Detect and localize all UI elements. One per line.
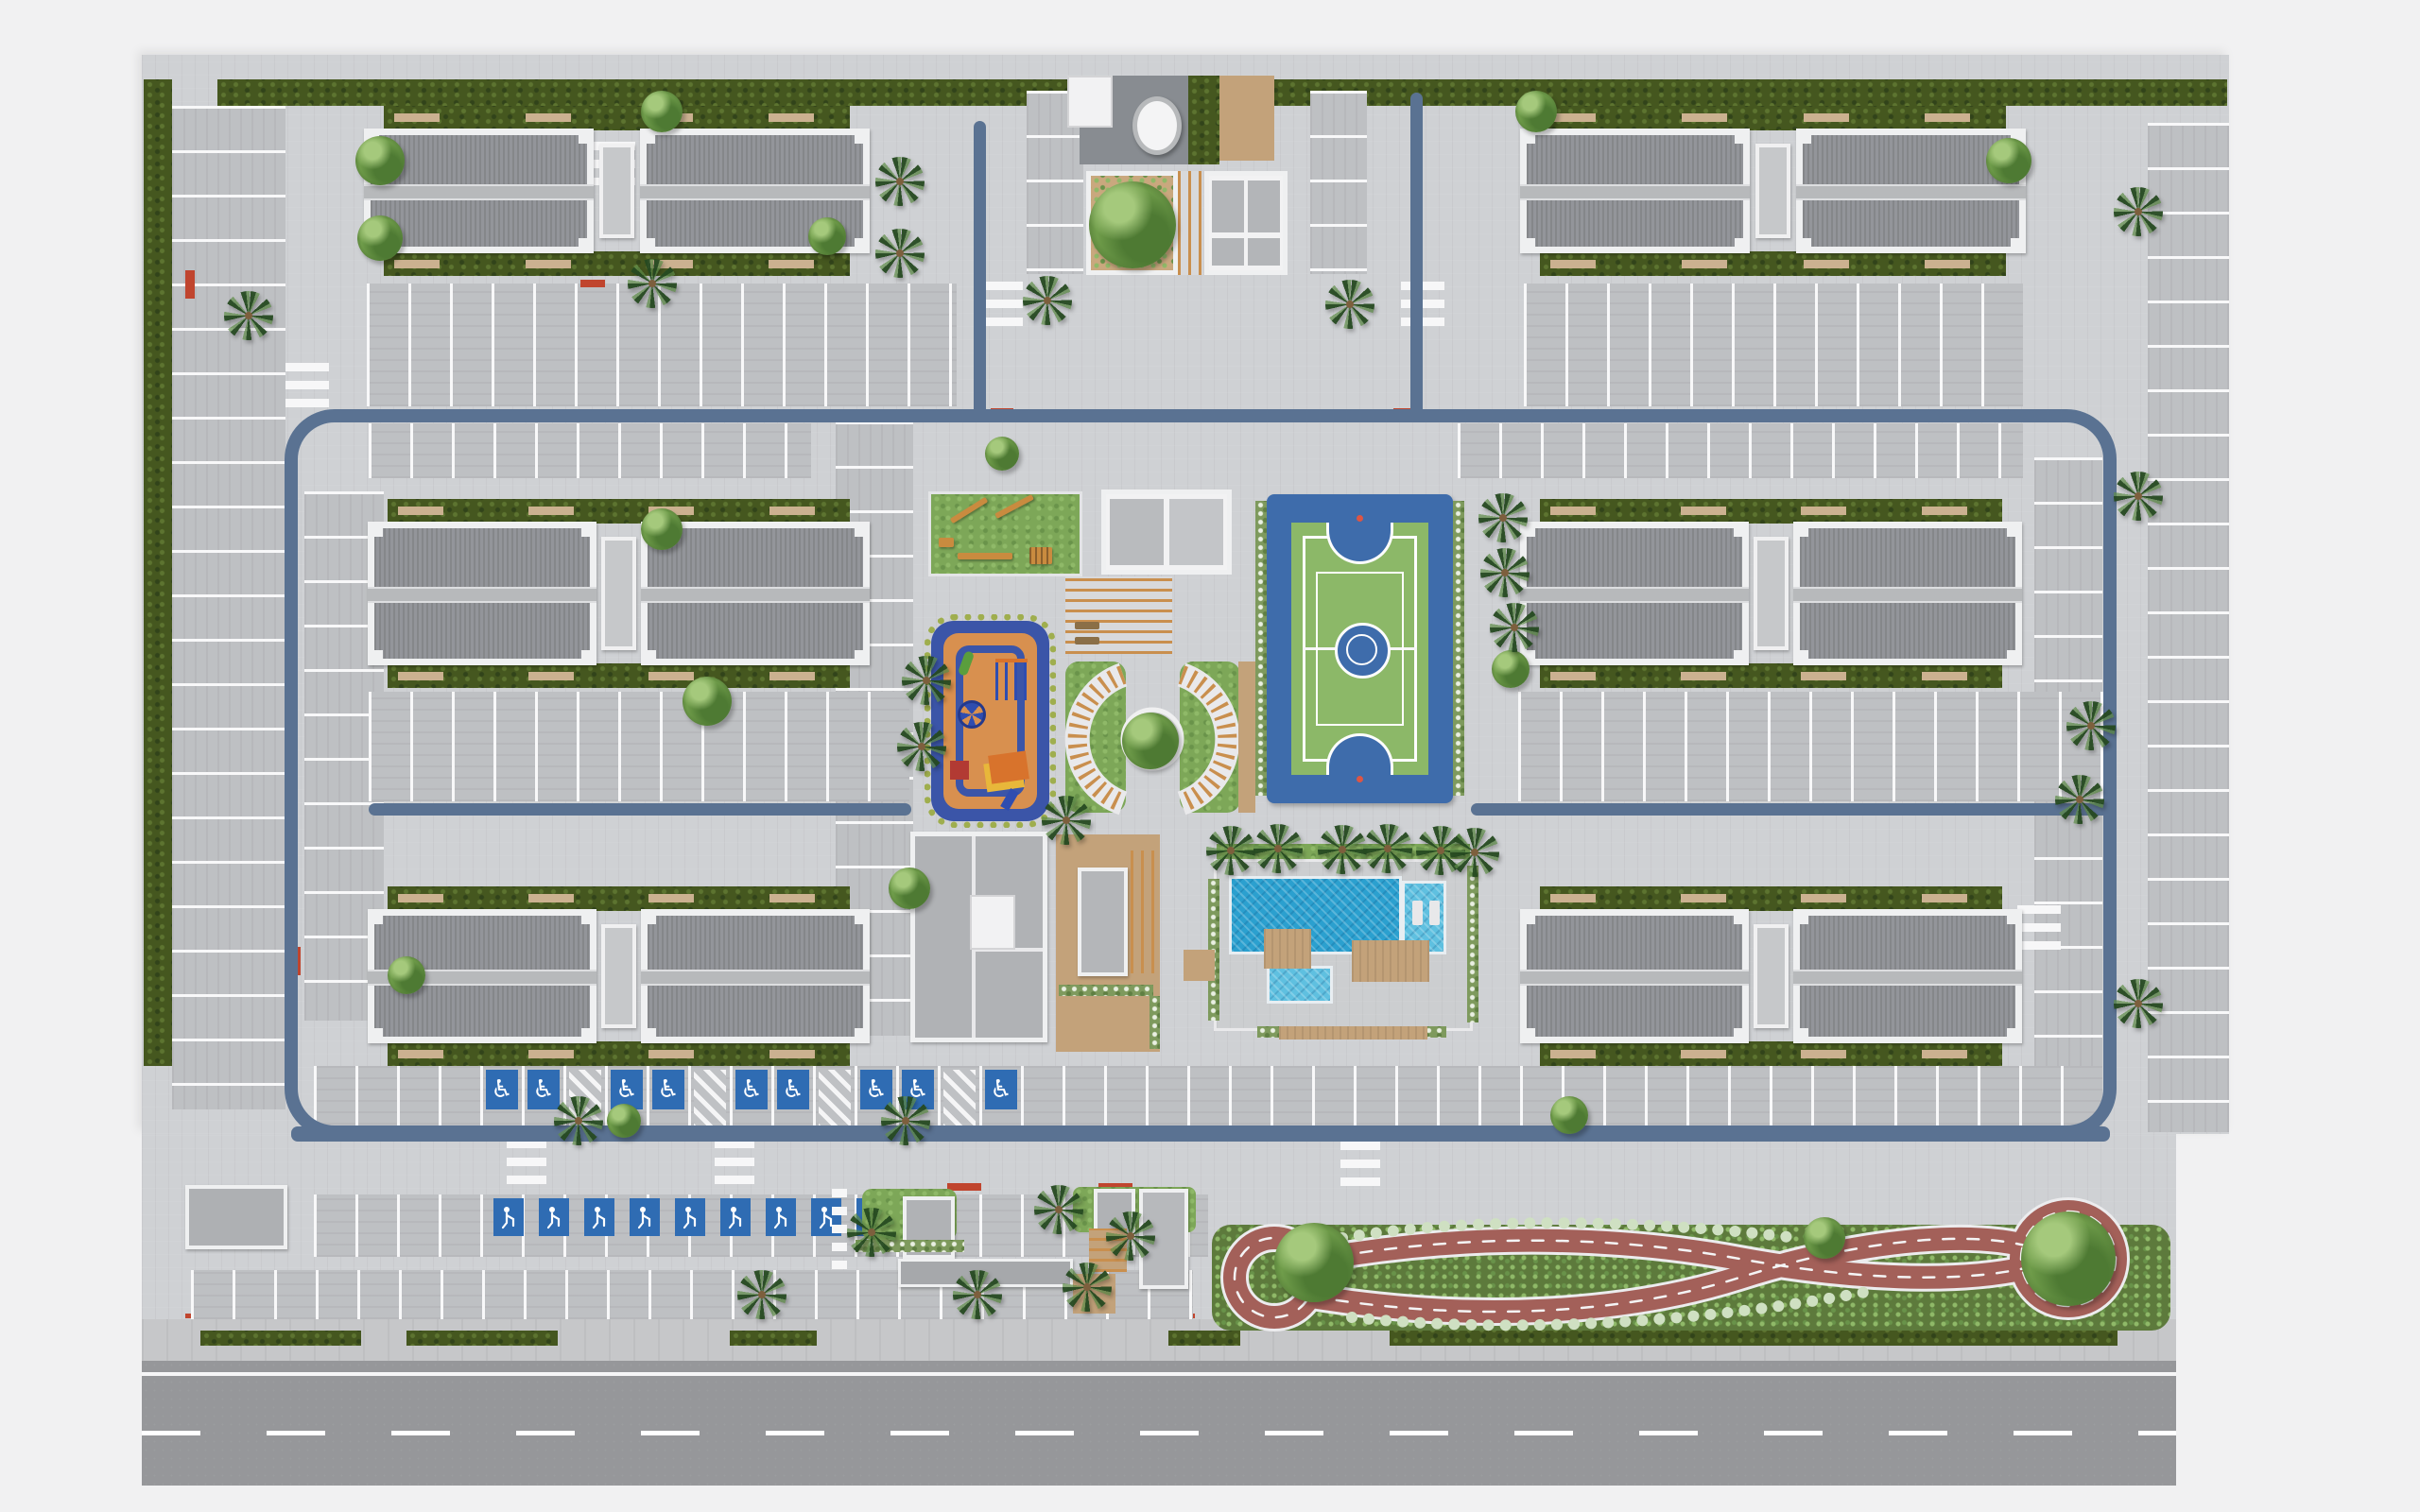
parapet-notch: [2011, 238, 2026, 253]
gate-lobby-skylight: [1212, 180, 1244, 232]
crosswalk: [285, 363, 329, 410]
parapet-notch: [641, 1028, 656, 1043]
pool-wood-deck-a: [1264, 929, 1311, 969]
parking-row: [172, 106, 285, 1109]
parapet-notch: [581, 650, 596, 665]
tower-roof: [1520, 522, 1749, 665]
balcony-strip: [1804, 113, 1849, 122]
tower-roof: [641, 909, 870, 1043]
person-with-cane-icon: [635, 1205, 654, 1229]
balcony-strip: [769, 507, 815, 515]
tree: [357, 215, 403, 261]
tower-roof: [1793, 522, 2022, 665]
palm-tree: [1063, 1263, 1112, 1312]
courtyard-pergola: [1131, 850, 1160, 973]
balcony-strip: [648, 1050, 694, 1058]
palm-tree: [1034, 1185, 1083, 1234]
parapet-notch: [1796, 238, 1811, 253]
parapet-notch: [1734, 1028, 1749, 1043]
person-with-cane-icon: [681, 1205, 700, 1229]
volley-line: [1316, 572, 1404, 726]
parapet-notch: [1520, 1028, 1535, 1043]
balcony-strip: [394, 260, 440, 268]
pool-hedge-right: [1467, 866, 1478, 1022]
balcony-strip: [1681, 894, 1726, 902]
pavilion-panel: [1169, 499, 1224, 565]
parapet-notch: [368, 1028, 383, 1043]
parapet-notch: [855, 129, 870, 144]
tower-roof: [368, 522, 596, 665]
balcony-strip: [394, 113, 440, 122]
red-curb-mark: [991, 408, 1013, 416]
climber: [988, 750, 1029, 783]
palm-tree: [554, 1096, 603, 1145]
person-with-cane-icon: [590, 1205, 609, 1229]
courtyard-hedge: [1059, 985, 1153, 996]
palm-tree: [897, 722, 946, 771]
parapet-notch: [581, 909, 596, 924]
senior-parking-stall: [584, 1198, 614, 1236]
tree: [1492, 650, 1530, 688]
senior-parking-stall: [766, 1198, 796, 1236]
entry-plaza: [1219, 76, 1274, 161]
palm-tree: [1023, 276, 1072, 325]
senior-parking-stall: [493, 1198, 524, 1236]
crosswalk: [2017, 905, 2061, 954]
pool-wood-deck-b: [1352, 940, 1429, 982]
palm-tree: [2114, 187, 2163, 236]
balcony-strip: [398, 507, 443, 515]
gate-lobby-skylight: [1248, 238, 1280, 266]
palm-tree: [1206, 826, 1255, 875]
accessible-parking-stall: ♿: [985, 1070, 1017, 1109]
skylight-pavilion: [1101, 490, 1232, 575]
parapet-notch: [1520, 238, 1535, 253]
accessible-parking-stall: ♿: [527, 1070, 560, 1109]
crosswalk: [1401, 282, 1444, 327]
curb-entry-left: [974, 121, 986, 416]
parapet-notch: [1735, 129, 1750, 144]
parapet-notch: [1520, 909, 1535, 924]
residential-block: [1520, 106, 2026, 276]
crosswalk: [507, 1140, 546, 1191]
parapet-notch: [855, 650, 870, 665]
sidewalk-planting: [200, 1331, 361, 1346]
palm-tree: [1318, 825, 1367, 874]
roof-ridge: [1520, 970, 1749, 986]
balcony-strip: [526, 113, 571, 122]
tower-roof: [1793, 909, 2022, 1043]
tree: [355, 136, 405, 185]
gate-lobby-roof: [1204, 171, 1288, 275]
tree: [1089, 181, 1176, 268]
hatched-no-parking-stall: [819, 1070, 851, 1130]
palm-tree: [953, 1270, 1002, 1319]
balcony-strip: [1801, 672, 1846, 680]
circulation-core: [601, 537, 636, 650]
parapet-notch: [1735, 238, 1750, 253]
circulation-core: [1754, 924, 1789, 1028]
palm-tree: [881, 1096, 930, 1145]
outdoor-fitness-lawn: [928, 491, 1082, 576]
balcony-strip: [1550, 672, 1596, 680]
roof-ridge: [1520, 184, 1750, 200]
roof-ridge: [364, 184, 594, 200]
pool-side-terrace: [1184, 950, 1215, 981]
tree: [1274, 1223, 1354, 1302]
sidewalk-planting: [406, 1331, 558, 1346]
tree: [641, 91, 683, 132]
clubhouse-roof: [910, 832, 1047, 1042]
parapet-notch: [855, 522, 870, 537]
residential-block: [368, 499, 870, 688]
in-pool-lounger: [1429, 901, 1440, 925]
parapet-notch: [2007, 522, 2022, 537]
balcony-strip: [1922, 507, 1967, 515]
sidewalk-planting: [730, 1331, 817, 1346]
red-curb-mark: [185, 270, 195, 299]
accessible-parking-stall: ♿: [652, 1070, 684, 1109]
roof-ridge: [641, 970, 870, 986]
parapet-notch: [1734, 909, 1749, 924]
parapet-notch: [1793, 522, 1808, 537]
parapet-notch: [579, 238, 594, 253]
residential-block: [368, 886, 870, 1066]
parapet-notch: [581, 522, 596, 537]
tree: [1515, 91, 1557, 132]
palm-tree: [1363, 824, 1412, 873]
red-curb-mark: [580, 280, 605, 287]
tree: [2021, 1211, 2116, 1306]
palm-tree: [628, 259, 677, 308]
curb-mid-left: [369, 803, 911, 816]
pool-wood-deck-c: [1279, 1026, 1427, 1039]
pavilion-panel: [1110, 499, 1165, 565]
parapet-notch: [368, 522, 383, 537]
balcony-strip: [1550, 260, 1596, 268]
palm-tree: [847, 1208, 896, 1257]
roof-ridge: [1793, 587, 2022, 603]
parapet-notch: [581, 1028, 596, 1043]
palm-tree: [875, 229, 925, 278]
swing-set: [995, 659, 1028, 700]
balcony-strip: [769, 672, 815, 680]
red-curb-mark: [291, 947, 301, 975]
parking-row: [1310, 91, 1367, 274]
balcony-strip: [398, 1050, 443, 1058]
balcony-strip: [769, 1050, 815, 1058]
court-hedge-left: [1255, 501, 1267, 796]
tree: [1122, 713, 1179, 769]
palm-tree: [1478, 493, 1528, 542]
balcony-strip: [1922, 1050, 1967, 1058]
parapet-notch: [1734, 650, 1749, 665]
tower-roof: [1520, 129, 1750, 253]
palm-tree: [1042, 796, 1091, 845]
palm-tree: [2114, 979, 2163, 1028]
balcony-strip: [1801, 1050, 1846, 1058]
courtyard-pavilion-roof: [1078, 868, 1128, 976]
roof-ridge: [368, 587, 596, 603]
parapet-notch: [1796, 129, 1811, 144]
person-with-cane-icon: [726, 1205, 745, 1229]
circulation-core: [1754, 537, 1789, 650]
accessible-parking-stall: ♿: [486, 1070, 518, 1109]
balcony-strip: [398, 672, 443, 680]
balcony-strip: [528, 1050, 574, 1058]
balcony-strip: [1925, 260, 1970, 268]
crosswalk: [1340, 1142, 1380, 1191]
balcony-strip: [1922, 672, 1967, 680]
balcony-strip: [1925, 113, 1970, 122]
palm-tree: [2114, 472, 2163, 521]
court-walk: [1238, 661, 1255, 813]
tree: [808, 217, 846, 255]
balcony-strip: [1681, 672, 1726, 680]
parking-row: [1524, 283, 2023, 406]
accessible-parking-stall: ♿: [777, 1070, 809, 1109]
parapet-notch: [368, 650, 383, 665]
tree: [641, 508, 683, 550]
balcony-strip: [1681, 507, 1726, 515]
balcony-strip: [1550, 113, 1596, 122]
balcony-strip: [769, 260, 814, 268]
roof-ridge: [641, 587, 870, 603]
parapet-notch: [2007, 1028, 2022, 1043]
person-with-cane-icon: [544, 1205, 563, 1229]
residential-block: [1520, 499, 2022, 688]
parapet-notch: [1793, 1028, 1808, 1043]
parapet-notch: [1793, 909, 1808, 924]
pergola-plaza-lawn-left: [1065, 661, 1126, 813]
parking-row: [369, 692, 909, 801]
crosswalk: [715, 1140, 754, 1191]
balcony-strip: [648, 894, 694, 902]
roof-ridge: [1520, 587, 1749, 603]
balcony-strip: [1801, 894, 1846, 902]
parapet-notch: [2007, 909, 2022, 924]
parapet-notch: [640, 129, 655, 144]
entry-pergola: [1178, 171, 1202, 275]
tree: [889, 868, 930, 909]
in-pool-lounger: [1412, 901, 1423, 925]
palm-tree: [1480, 548, 1530, 597]
palm-tree: [1490, 603, 1539, 652]
tree: [388, 956, 425, 994]
senior-parking-stall: [720, 1198, 751, 1236]
curb-entry-right: [1410, 93, 1423, 416]
parapet-notch: [1793, 650, 1808, 665]
kids-pool: [1267, 966, 1333, 1004]
utility-green-strip: [1188, 76, 1219, 164]
site-plan-rendering: ♿♿♿♿♿♿♿♿♿: [0, 0, 2420, 1512]
palm-tree: [2066, 701, 2116, 750]
palm-tree: [1106, 1211, 1155, 1261]
accessible-parking-stall: ♿: [735, 1070, 768, 1109]
balcony-strip: [1681, 1050, 1726, 1058]
multisport-court: [1267, 494, 1453, 803]
hoop-top: [1357, 515, 1363, 522]
utility-roof: [1067, 76, 1113, 128]
palm-tree: [1253, 824, 1303, 873]
sidewalk-planting: [1168, 1331, 1240, 1346]
palm-tree: [224, 291, 273, 340]
senior-parking-stall: [539, 1198, 569, 1236]
bench: [1075, 637, 1099, 644]
hatched-no-parking-stall: [943, 1070, 976, 1130]
balcony-strip: [1550, 1050, 1596, 1058]
balcony-strip: [398, 894, 443, 902]
roof-ridge: [1793, 970, 2022, 986]
gate-lobby-skylight: [1248, 180, 1280, 232]
pergola-plaza-lawn-right: [1180, 661, 1240, 813]
parapet-notch: [641, 650, 656, 665]
balcony-strip: [1801, 507, 1846, 515]
tower-roof: [1520, 909, 1749, 1043]
balcony-strip: [528, 672, 574, 680]
parapet-notch: [641, 909, 656, 924]
red-curb-mark: [2104, 900, 2114, 926]
palm-tree: [2055, 775, 2104, 824]
balcony-strip: [1550, 507, 1596, 515]
balcony-strip: [648, 672, 694, 680]
curb-mid-right: [1471, 803, 2110, 816]
bench: [1075, 622, 1099, 629]
court-hedge-right: [1453, 501, 1464, 796]
balcony-strip: [1804, 260, 1849, 268]
gate-walk-stripes: [832, 1189, 847, 1274]
circulation-core: [601, 924, 636, 1028]
tree: [985, 437, 1019, 471]
balcony-strip: [769, 113, 814, 122]
palm-tree: [902, 656, 951, 705]
tree: [1804, 1217, 1845, 1259]
palm-tree: [737, 1270, 786, 1319]
parapet-notch: [640, 238, 655, 253]
balcony-strip: [769, 894, 815, 902]
parapet-notch: [579, 129, 594, 144]
tree: [607, 1104, 641, 1138]
residential-block: [364, 106, 870, 276]
parapet-notch: [855, 1028, 870, 1043]
hatched-no-parking-stall: [694, 1070, 726, 1130]
playhouse: [950, 761, 969, 780]
palm-tree: [1325, 280, 1374, 329]
tree: [1986, 138, 2031, 183]
senior-parking-stall: [675, 1198, 705, 1236]
residential-block: [1520, 886, 2022, 1066]
palm-tree: [1450, 828, 1499, 877]
balcony-strip: [1682, 260, 1727, 268]
senior-parking-stall: [630, 1198, 660, 1236]
parapet-notch: [2007, 650, 2022, 665]
roof-ridge: [640, 184, 870, 200]
parking-row: [369, 423, 811, 478]
balcony-strip: [526, 260, 571, 268]
roof-ridge: [1796, 184, 2026, 200]
tree: [683, 677, 732, 726]
circulation-core: [1755, 144, 1790, 238]
courtyard-hedge-side: [1149, 996, 1160, 1049]
palm-tree: [875, 157, 925, 206]
person-with-cane-icon: [771, 1205, 790, 1229]
playground: [925, 614, 1056, 828]
parking-row: [1518, 692, 2110, 801]
parking-row: [1458, 423, 2023, 478]
parapet-notch: [368, 909, 383, 924]
parking-row: [2148, 123, 2229, 1132]
water-tank: [1132, 96, 1182, 155]
gate-lobby-skylight: [1212, 238, 1244, 266]
parapet-notch: [855, 238, 870, 253]
balcony-strip: [1922, 894, 1967, 902]
circulation-core: [599, 144, 634, 238]
pergola-lounge: [1065, 576, 1172, 654]
person-with-cane-icon: [499, 1205, 518, 1229]
balcony-strip: [528, 894, 574, 902]
tree: [1550, 1096, 1588, 1134]
hoop-bottom: [1357, 776, 1363, 782]
carousel: [958, 700, 986, 729]
balcony-strip: [528, 507, 574, 515]
balcony-strip: [1682, 113, 1727, 122]
service-building-roof: [185, 1185, 287, 1249]
clubhouse-upper-roof: [970, 895, 1015, 950]
parapet-notch: [855, 909, 870, 924]
balcony-strip: [1550, 894, 1596, 902]
parapet-notch: [1734, 522, 1749, 537]
